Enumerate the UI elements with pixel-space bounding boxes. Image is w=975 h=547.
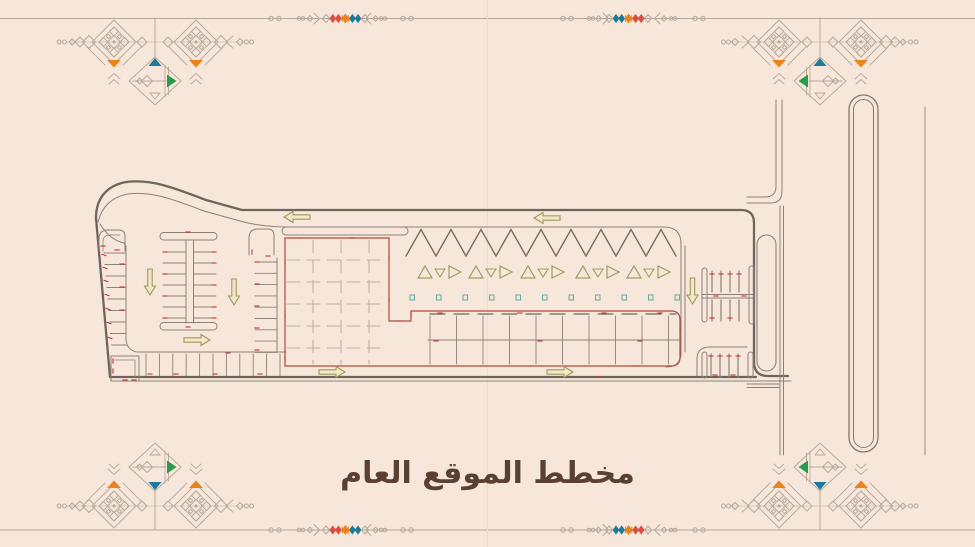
triangle-marker-group (521, 266, 564, 278)
lower-parking-terrace (428, 314, 679, 364)
column-marker (569, 295, 574, 300)
left-parking-zone (99, 224, 286, 381)
triangle-marker-group (418, 266, 461, 278)
top-road-arrow-2-left-arrow-icon (534, 213, 560, 224)
column-marker (516, 295, 521, 300)
mid-aisle-arrow-right-arrow-icon (184, 335, 210, 346)
triangle-marker-group (469, 266, 512, 278)
column-marker (463, 295, 468, 300)
slide-title: مخطط الموقع العام (0, 456, 975, 491)
triangle-marker-group (576, 266, 619, 278)
left-aisle-arrow-down-arrow-icon (145, 269, 156, 295)
parking-symbols (410, 266, 680, 300)
structural-grid (287, 240, 387, 364)
center-aisle-arrow-down-arrow-icon (229, 279, 240, 305)
column-marker (543, 295, 548, 300)
slide-canvas: مخطط الموقع العام (0, 0, 975, 547)
triangle-marker-group (627, 266, 670, 278)
column-marker (649, 295, 654, 300)
column-marker (596, 295, 601, 300)
site-plan (96, 95, 925, 455)
column-marker (437, 295, 442, 300)
corner-ornament-top-right (722, 18, 919, 105)
column-marker (675, 295, 680, 300)
column-marker (410, 295, 415, 300)
column-marker (490, 295, 495, 300)
top-road-arrow-1-left-arrow-icon (284, 212, 310, 223)
roads-layer (96, 95, 925, 455)
lower-aisle-arrow-2-right-arrow-icon (547, 367, 573, 378)
hatched-strip (406, 230, 676, 257)
right-aisle-arrow-down-arrow-icon (687, 278, 698, 304)
corner-ornament-top-left (57, 18, 254, 105)
right-parking-clusters (697, 266, 754, 378)
lower-aisle-arrow-1-right-arrow-icon (319, 367, 345, 378)
column-marker (622, 295, 627, 300)
dimension-ticks (100, 232, 746, 380)
